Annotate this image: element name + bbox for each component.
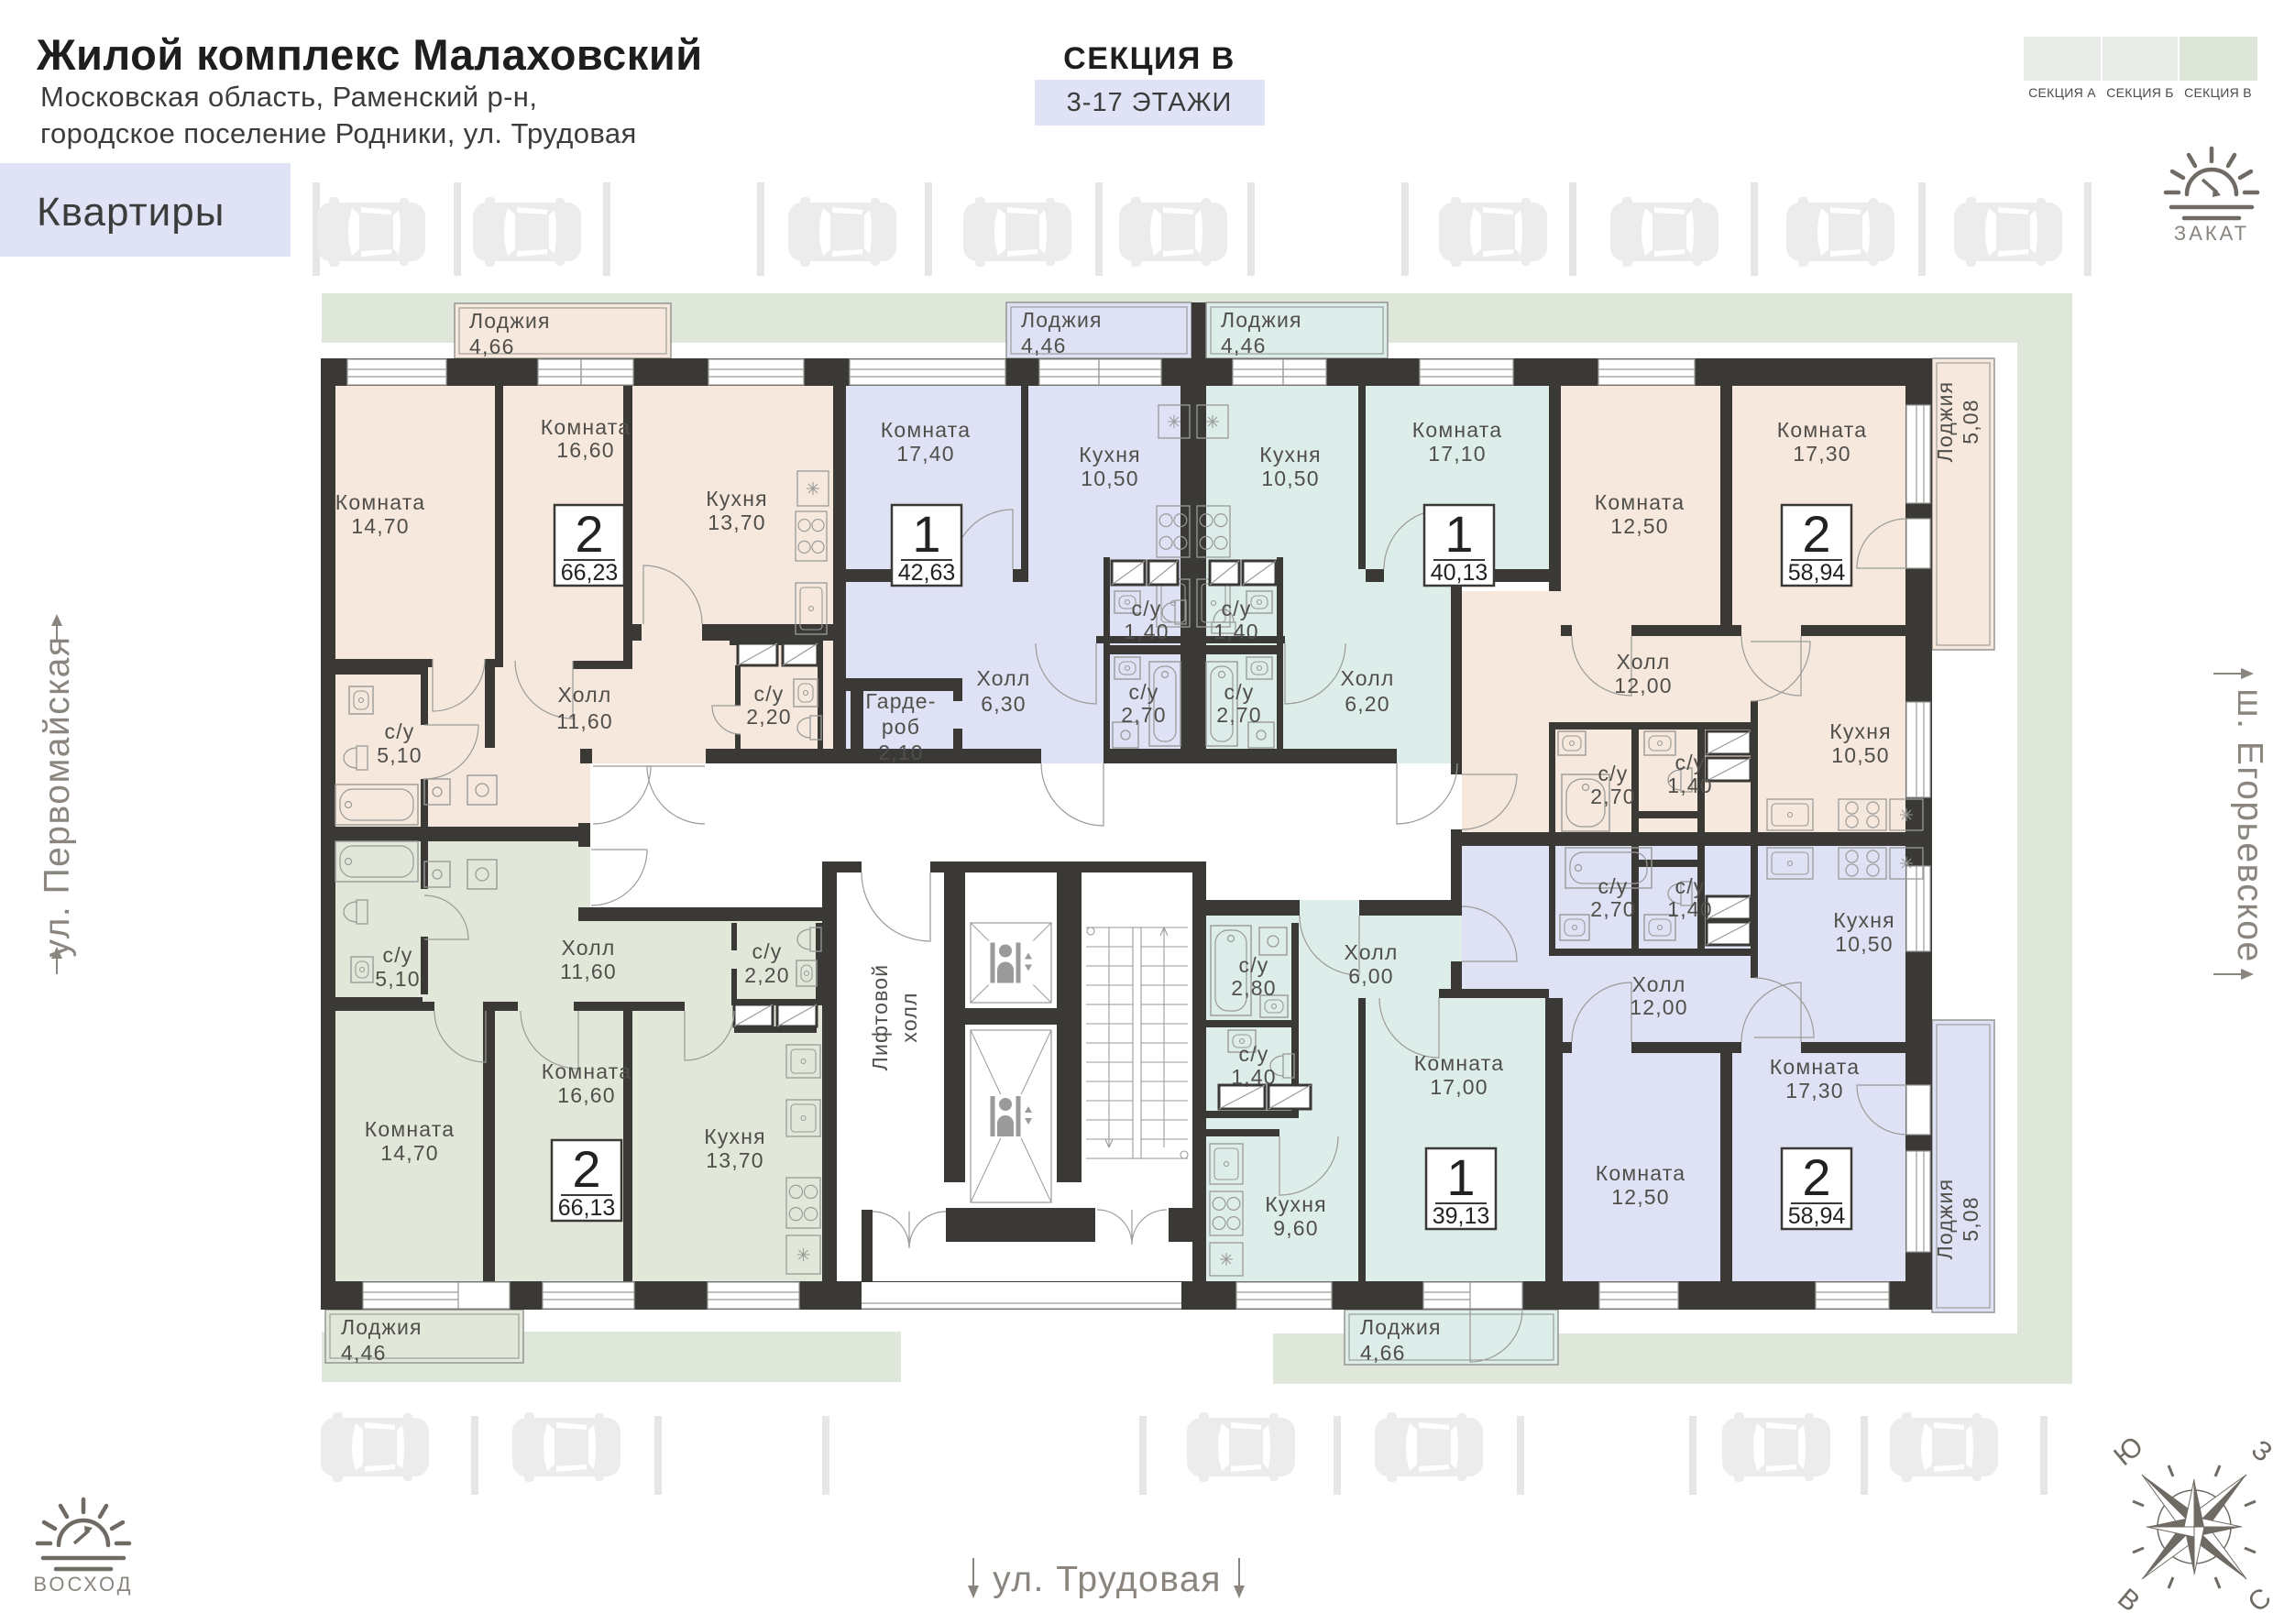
svg-text:Кухня: Кухня bbox=[706, 487, 768, 510]
svg-text:1,40: 1,40 bbox=[1231, 1065, 1277, 1089]
svg-text:Холл: Холл bbox=[557, 683, 611, 707]
svg-text:Комната: Комната bbox=[1596, 1161, 1686, 1185]
svg-text:Жилой комплекс Малаховский: Жилой комплекс Малаховский bbox=[36, 30, 703, 79]
svg-text:СЕКЦИЯ В: СЕКЦИЯ В bbox=[2184, 85, 2252, 100]
svg-text:Комната: Комната bbox=[881, 418, 971, 442]
svg-text:40,13: 40,13 bbox=[1431, 560, 1488, 586]
svg-text:1,40: 1,40 bbox=[1124, 620, 1169, 643]
svg-text:Холл: Холл bbox=[1340, 666, 1394, 690]
svg-text:10,50: 10,50 bbox=[1081, 466, 1139, 490]
svg-text:4,66: 4,66 bbox=[469, 335, 515, 358]
svg-text:11,60: 11,60 bbox=[556, 709, 613, 733]
svg-text:Кухня: Кухня bbox=[1079, 443, 1141, 466]
svg-text:Холл: Холл bbox=[1344, 940, 1398, 964]
svg-text:с/у: с/у bbox=[1675, 874, 1706, 898]
svg-text:Лоджия: Лоджия bbox=[1360, 1315, 1442, 1339]
svg-text:9,60: 9,60 bbox=[1273, 1216, 1319, 1240]
svg-text:10,50: 10,50 bbox=[1261, 466, 1320, 490]
svg-text:58,94: 58,94 bbox=[1788, 1203, 1846, 1229]
svg-text:Комната: Комната bbox=[1777, 418, 1867, 442]
svg-text:5,08: 5,08 bbox=[1959, 1196, 1982, 1242]
svg-text:Комната: Комната bbox=[335, 490, 425, 514]
svg-text:66,13: 66,13 bbox=[558, 1195, 616, 1221]
svg-text:Комната: Комната bbox=[365, 1117, 455, 1141]
svg-text:Комната: Комната bbox=[1770, 1055, 1860, 1079]
svg-text:10,50: 10,50 bbox=[1831, 743, 1890, 767]
svg-text:Лоджия: Лоджия bbox=[1021, 308, 1103, 332]
svg-text:42,63: 42,63 bbox=[898, 560, 956, 586]
svg-text:Квартиры: Квартиры bbox=[37, 190, 225, 235]
svg-text:с/у: с/у bbox=[754, 682, 785, 706]
svg-text:5,10: 5,10 bbox=[377, 743, 423, 767]
svg-text:1,40: 1,40 bbox=[1667, 774, 1713, 797]
svg-text:1,40: 1,40 bbox=[1667, 897, 1713, 921]
svg-text:Холл: Холл bbox=[976, 666, 1030, 690]
svg-text:Комната: Комната bbox=[1595, 490, 1685, 514]
svg-text:58,94: 58,94 bbox=[1788, 560, 1846, 586]
svg-text:Лоджия: Лоджия bbox=[341, 1315, 423, 1339]
svg-text:Лоджия: Лоджия bbox=[1933, 381, 1957, 463]
svg-text:17,40: 17,40 bbox=[896, 442, 955, 466]
svg-text:с/у: с/у bbox=[1222, 597, 1252, 620]
svg-text:10,50: 10,50 bbox=[1835, 932, 1894, 956]
svg-text:Комната: Комната bbox=[1412, 418, 1502, 442]
svg-text:2,70: 2,70 bbox=[1121, 703, 1167, 727]
svg-text:12,00: 12,00 bbox=[1630, 995, 1688, 1019]
svg-text:Кухня: Кухня bbox=[1833, 908, 1895, 932]
svg-text:ул. Первомайская: ул. Первомайская bbox=[38, 636, 77, 958]
svg-text:14,70: 14,70 bbox=[351, 514, 410, 538]
svg-text:13,70: 13,70 bbox=[708, 510, 766, 534]
svg-text:Московская область, Раменский: Московская область, Раменский р-н, bbox=[40, 81, 537, 113]
svg-text:с/у: с/у bbox=[1224, 680, 1255, 704]
svg-text:12,50: 12,50 bbox=[1610, 514, 1669, 538]
svg-text:1: 1 bbox=[1446, 1148, 1475, 1206]
svg-text:Лоджия: Лоджия bbox=[469, 309, 551, 333]
svg-text:16,60: 16,60 bbox=[557, 1083, 616, 1107]
svg-text:2: 2 bbox=[575, 505, 603, 563]
svg-text:Кухня: Кухня bbox=[1829, 719, 1892, 743]
svg-text:с/у: с/у bbox=[1129, 680, 1159, 704]
svg-text:4,66: 4,66 bbox=[1360, 1341, 1406, 1365]
svg-text:2,70: 2,70 bbox=[1590, 785, 1636, 808]
svg-text:Кухня: Кухня bbox=[1265, 1192, 1327, 1216]
svg-text:1,40: 1,40 bbox=[1213, 620, 1259, 643]
svg-text:с/у: с/у bbox=[1675, 751, 1706, 774]
svg-text:СЕКЦИЯ А: СЕКЦИЯ А bbox=[2028, 85, 2096, 100]
svg-text:холл: холл bbox=[897, 992, 921, 1042]
svg-text:17,10: 17,10 bbox=[1428, 442, 1487, 466]
svg-text:17,00: 17,00 bbox=[1430, 1075, 1488, 1099]
svg-text:ул. Трудовая: ул. Трудовая bbox=[993, 1560, 1222, 1599]
svg-text:13,70: 13,70 bbox=[706, 1148, 764, 1172]
svg-text:Лифтовой: Лифтовой bbox=[868, 964, 892, 1071]
svg-text:Лоджия: Лоджия bbox=[1221, 308, 1302, 332]
svg-text:6,00: 6,00 bbox=[1348, 964, 1394, 988]
svg-text:17,30: 17,30 bbox=[1793, 442, 1851, 466]
svg-text:с/у: с/у bbox=[383, 943, 413, 967]
svg-text:Лоджия: Лоджия bbox=[1933, 1179, 1957, 1260]
svg-text:ВОСХОД: ВОСХОД bbox=[33, 1573, 133, 1596]
svg-text:2,70: 2,70 bbox=[1216, 703, 1262, 727]
svg-text:ш. Егорьевское: ш. Егорьевское bbox=[2230, 688, 2269, 962]
svg-text:Комната: Комната bbox=[541, 415, 631, 439]
svg-text:2,20: 2,20 bbox=[746, 705, 792, 729]
svg-text:роб: роб bbox=[882, 715, 920, 739]
svg-text:городское поселение Родники, у: городское поселение Родники, ул. Трудова… bbox=[40, 117, 637, 149]
svg-text:СЕКЦИЯ В: СЕКЦИЯ В bbox=[1063, 41, 1235, 76]
svg-text:4,46: 4,46 bbox=[1021, 334, 1067, 357]
svg-text:Комната: Комната bbox=[1414, 1051, 1504, 1075]
svg-text:Холл: Холл bbox=[1616, 650, 1670, 674]
svg-text:Комната: Комната bbox=[542, 1059, 631, 1083]
svg-text:6,20: 6,20 bbox=[1345, 692, 1390, 716]
svg-text:11,60: 11,60 bbox=[560, 960, 617, 983]
svg-text:ЗАКАТ: ЗАКАТ bbox=[2174, 222, 2249, 245]
svg-text:с/у: с/у bbox=[1239, 1042, 1269, 1066]
svg-text:5,10: 5,10 bbox=[375, 967, 421, 991]
svg-text:4,46: 4,46 bbox=[341, 1341, 387, 1365]
svg-text:Кухня: Кухня bbox=[704, 1125, 766, 1148]
svg-text:Холл: Холл bbox=[561, 936, 615, 960]
svg-text:12,00: 12,00 bbox=[1614, 674, 1673, 697]
svg-text:12,50: 12,50 bbox=[1611, 1185, 1670, 1209]
svg-text:1: 1 bbox=[1444, 505, 1473, 563]
svg-text:2,80: 2,80 bbox=[1231, 976, 1277, 1000]
svg-text:66,23: 66,23 bbox=[561, 560, 619, 586]
svg-text:2: 2 bbox=[1802, 505, 1830, 563]
svg-text:2: 2 bbox=[572, 1140, 600, 1198]
svg-text:с/у: с/у bbox=[1598, 874, 1629, 898]
svg-text:Гарде-: Гарде- bbox=[865, 689, 936, 713]
svg-text:2,10: 2,10 bbox=[878, 741, 924, 764]
svg-text:5,08: 5,08 bbox=[1959, 399, 1982, 444]
svg-text:2: 2 bbox=[1802, 1148, 1830, 1206]
svg-text:4,46: 4,46 bbox=[1221, 334, 1267, 357]
svg-text:Холл: Холл bbox=[1631, 972, 1686, 996]
svg-text:6,30: 6,30 bbox=[981, 692, 1027, 716]
svg-text:2,20: 2,20 bbox=[744, 963, 790, 987]
svg-text:с/у: с/у bbox=[385, 719, 415, 743]
svg-text:17,30: 17,30 bbox=[1785, 1079, 1844, 1103]
svg-text:16,60: 16,60 bbox=[556, 438, 615, 462]
svg-text:39,13: 39,13 bbox=[1433, 1203, 1490, 1229]
svg-text:с/у: с/у bbox=[752, 939, 783, 963]
svg-text:с/у: с/у bbox=[1598, 762, 1629, 785]
svg-text:с/у: с/у bbox=[1239, 953, 1269, 977]
svg-text:3-17 ЭТАЖИ: 3-17 ЭТАЖИ bbox=[1067, 88, 1233, 117]
svg-text:1: 1 bbox=[912, 505, 940, 563]
svg-text:с/у: с/у bbox=[1132, 597, 1162, 620]
svg-text:Кухня: Кухня bbox=[1259, 443, 1322, 466]
svg-text:СЕКЦИЯ Б: СЕКЦИЯ Б bbox=[2106, 85, 2174, 100]
svg-text:14,70: 14,70 bbox=[380, 1141, 439, 1165]
svg-text:2,70: 2,70 bbox=[1590, 897, 1636, 921]
